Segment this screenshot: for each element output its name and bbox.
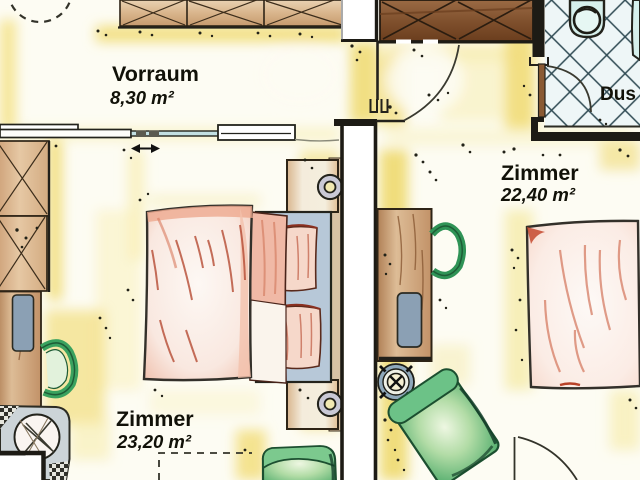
svg-text:22,40 m²: 22,40 m² [500, 184, 576, 205]
svg-text:Zimmer: Zimmer [501, 161, 579, 185]
svg-text:8,30 m²: 8,30 m² [110, 87, 175, 108]
svg-text:Dus: Dus [600, 84, 636, 105]
svg-text:23,20 m²: 23,20 m² [116, 431, 192, 452]
svg-text:Vorraum: Vorraum [112, 62, 199, 86]
svg-text:Zimmer: Zimmer [116, 407, 194, 431]
